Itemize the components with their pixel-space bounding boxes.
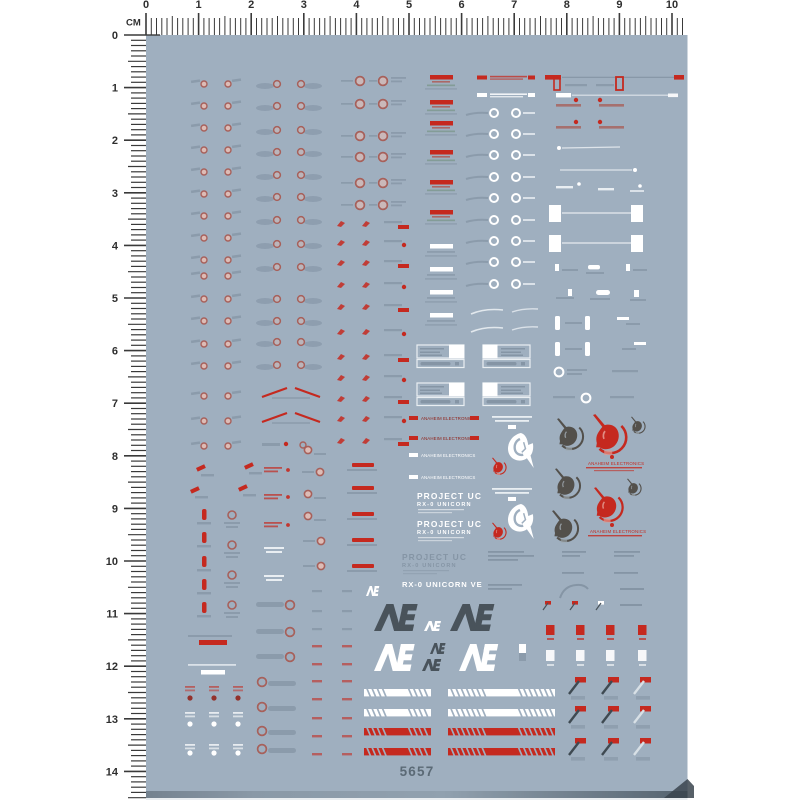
- svg-text:5657: 5657: [400, 764, 435, 779]
- svg-text:ANAHEIM ELECTRONICS: ANAHEIM ELECTRONICS: [590, 529, 646, 534]
- svg-text:8: 8: [564, 0, 570, 11]
- svg-text:11: 11: [106, 609, 118, 621]
- svg-text:ANAHEIM ELECTRONICS: ANAHEIM ELECTRONICS: [421, 475, 475, 480]
- svg-text:ANAHEIM ELECTRONICS: ANAHEIM ELECTRONICS: [421, 453, 475, 458]
- svg-text:ANAHEIM ELECTRONICS: ANAHEIM ELECTRONICS: [421, 436, 475, 441]
- svg-text:4: 4: [353, 0, 360, 11]
- svg-text:1: 1: [112, 83, 118, 95]
- svg-text:4: 4: [112, 240, 119, 252]
- svg-text:6: 6: [459, 0, 465, 11]
- svg-text:8: 8: [112, 451, 118, 463]
- svg-text:ANAHEIM ELECTRONICS: ANAHEIM ELECTRONICS: [421, 416, 475, 421]
- svg-text:6: 6: [112, 346, 118, 358]
- svg-text:0: 0: [112, 30, 118, 42]
- svg-text:2: 2: [112, 135, 118, 147]
- svg-text:RX-0 UNICORN: RX-0 UNICORN: [417, 530, 472, 536]
- svg-text:7: 7: [511, 0, 517, 11]
- svg-text:9: 9: [616, 0, 622, 11]
- svg-text:9: 9: [112, 503, 118, 515]
- svg-text:2: 2: [248, 0, 254, 11]
- svg-text:PROJECT UC: PROJECT UC: [402, 552, 467, 562]
- svg-text:10: 10: [106, 556, 118, 568]
- svg-text:RX-0 UNICORN VE: RX-0 UNICORN VE: [402, 580, 483, 589]
- svg-text:PROJECT UC: PROJECT UC: [417, 519, 482, 529]
- svg-text:13: 13: [106, 714, 118, 726]
- svg-text:1: 1: [196, 0, 202, 11]
- svg-text:3: 3: [112, 188, 118, 200]
- svg-text:ANAHEIM ELECTRONICS: ANAHEIM ELECTRONICS: [588, 461, 644, 466]
- svg-text:PROJECT UC: PROJECT UC: [417, 491, 482, 501]
- svg-text:14: 14: [106, 766, 119, 778]
- svg-text:RX-0 UNICORN: RX-0 UNICORN: [402, 563, 457, 569]
- svg-text:5: 5: [112, 293, 118, 305]
- svg-text:10: 10: [666, 0, 678, 11]
- svg-text:7: 7: [112, 398, 118, 410]
- svg-text:12: 12: [106, 661, 118, 673]
- svg-text:0: 0: [143, 0, 149, 11]
- svg-text:3: 3: [301, 0, 307, 11]
- svg-text:5: 5: [406, 0, 412, 11]
- svg-text:RX-0 UNICORN: RX-0 UNICORN: [417, 502, 472, 508]
- svg-text:CM: CM: [126, 18, 141, 29]
